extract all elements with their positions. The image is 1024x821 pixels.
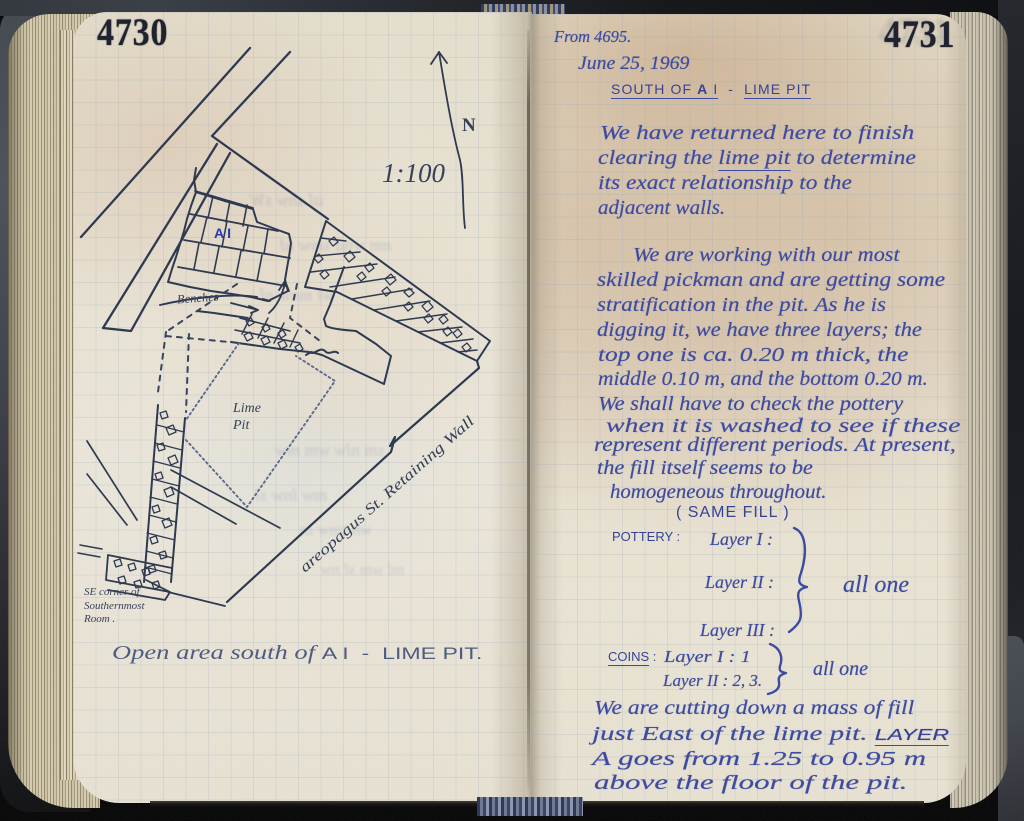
svg-text:AI: AI	[214, 225, 234, 241]
